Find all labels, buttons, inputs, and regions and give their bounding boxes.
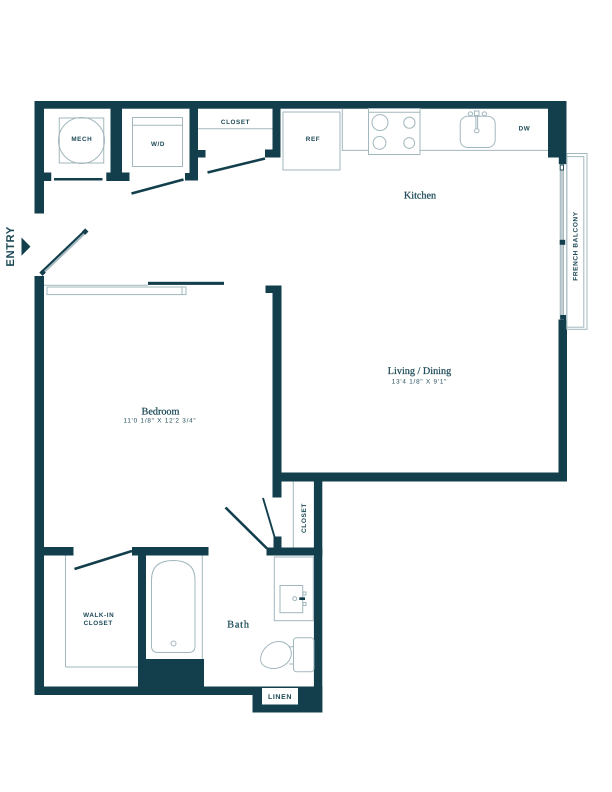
svg-text:Kitchen: Kitchen bbox=[404, 191, 436, 202]
svg-text:DW: DW bbox=[519, 125, 531, 132]
svg-text:ENTRY: ENTRY bbox=[5, 226, 17, 266]
svg-text:Bath: Bath bbox=[227, 620, 249, 631]
svg-text:CLOSET: CLOSET bbox=[221, 119, 250, 126]
svg-text:CLOSET: CLOSET bbox=[84, 620, 113, 627]
svg-text:WALK-IN: WALK-IN bbox=[83, 612, 114, 619]
svg-text:REF: REF bbox=[306, 136, 320, 143]
svg-text:Bedroom: Bedroom bbox=[142, 407, 180, 418]
svg-text:W/D: W/D bbox=[151, 141, 165, 148]
svg-text:13'4 1/8" X 9'1": 13'4 1/8" X 9'1" bbox=[392, 379, 447, 386]
svg-text:LINEN: LINEN bbox=[268, 694, 292, 701]
svg-text:FRENCH BALCONY: FRENCH BALCONY bbox=[573, 211, 580, 280]
svg-text:11'0 1/8" X 12'2 3/4": 11'0 1/8" X 12'2 3/4" bbox=[124, 418, 197, 425]
svg-text:CLOSET: CLOSET bbox=[301, 503, 308, 533]
svg-text:Living / Dining: Living / Dining bbox=[388, 366, 451, 377]
svg-text:MECH: MECH bbox=[71, 136, 92, 143]
